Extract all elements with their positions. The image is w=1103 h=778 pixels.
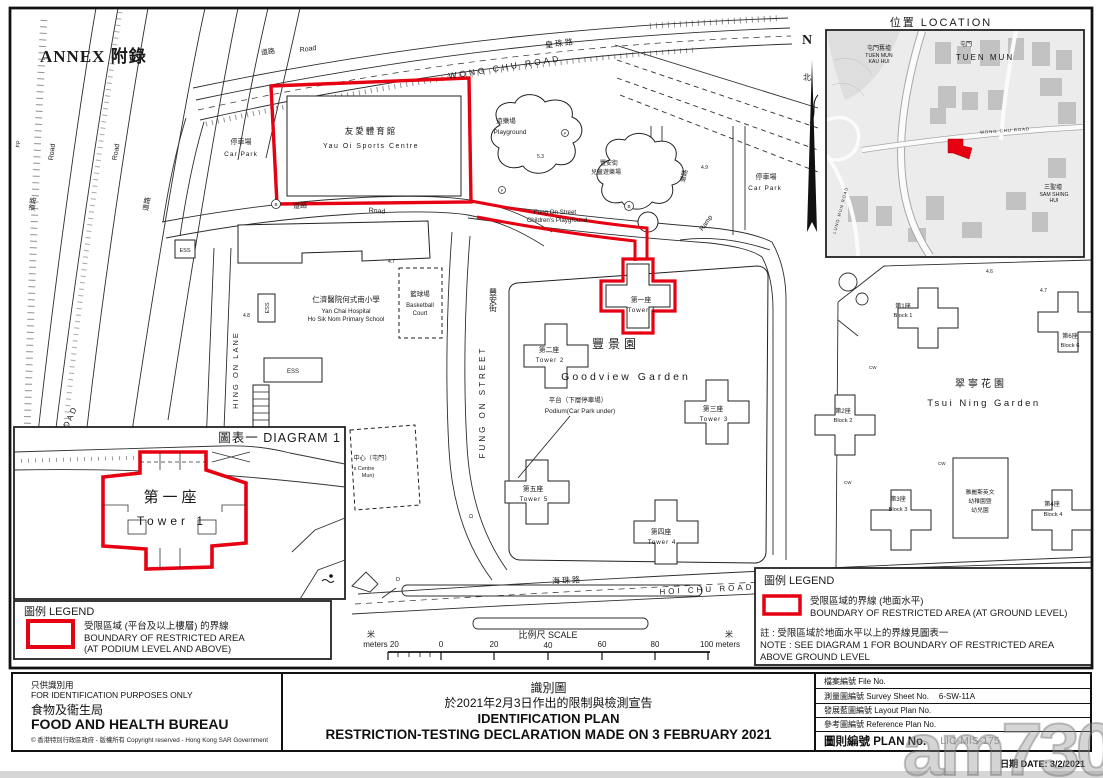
legend-ground: 圖例 LEGEND 受限區域的界線 (地面水平) BOUNDARY OF RES… [755,568,1092,665]
plan-subtitle-en: RESTRICTION-TESTING DECLARATION MADE ON … [325,727,771,743]
label-block-3-zh: 第3座 [890,495,906,503]
label-goodview-en: Goodview Garden [561,371,691,383]
kindergarten-building [953,458,1008,538]
legend-ground-note-en2: ABOVE GROUND LEVEL [760,652,870,663]
label-tsui-ning-zh: 翠寧花園 [955,377,1007,390]
label-goodview-zh: 豐景園 [592,337,640,351]
label-school-en1: Yan Chai Hospital [321,308,370,315]
label-block-2-en: Block 2 [833,418,852,424]
label-block-6-zh: 第6座 [1062,332,1078,340]
legend-podium-title: 圖例 LEGEND [24,604,94,618]
location-inset: 位置 LOCATION [826,15,1084,257]
cw-mark: CW [938,461,946,466]
label-tower-4-en: Tower 4 [648,539,677,546]
bureau-zh: 食物及衞生局 [31,703,275,717]
label-basketball-en2: Court [413,311,428,317]
label-block-3-en: Block 3 [888,507,907,513]
label-block-6-en: Block 6 [1060,343,1079,349]
scale-right-label: 100 meters [700,640,740,649]
label-block-1-en: Block 1 [893,313,912,319]
label-car-park-left-en: Car Park [224,151,258,158]
label-ess-a: ESS [179,248,190,254]
d-mark: D [469,514,475,518]
cw-mark: CW [869,365,877,370]
playground-p-letter: P [564,131,567,136]
inset-label-ssh-zh: 三聖墟 [1044,183,1062,191]
label-sports-centre-en: Yau Oi Sports Centre [323,143,419,150]
label-ess-b: ESS [265,302,271,313]
scale-left-label: meters 20 [363,640,399,649]
label-tower-2-en: Tower 2 [536,357,565,364]
spot-height: 4.6 [986,269,993,275]
label-playground-zh: 遊樂場 [496,116,516,125]
label-tower-5-zh: 第五座 [523,484,544,493]
label-playground-en: Playground [494,129,527,136]
legend-ground-note-en1: NOTE : SEE DIAGRAM 1 FOR BOUNDARY OF RES… [760,640,1055,651]
label-tower-1-zh: 第一座 [631,295,652,304]
label-fung-on-street-en: FUNG ON STREET [478,346,487,459]
label-fung-on-street-zh: 豐安街 [489,287,498,313]
label-tower-3-zh: 第三座 [703,404,724,413]
inset-label-ssh-en2: HUI [1050,198,1059,204]
diagram1-title: 圖表一 DIAGRAM 1 [218,431,341,445]
label-basketball-zh: 籃球場 [410,289,430,298]
label-centre-en2: Mun) [362,473,375,479]
legend-podium-line-en2: (AT PODIUM LEVEL AND ABOVE) [84,644,231,655]
plan-title-en: IDENTIFICATION PLAN [477,711,619,727]
label-kindergarten-2: 幼稚園暨 [968,497,991,505]
label-block-4-en: Block 4 [1043,512,1063,518]
legend-podium-line-zh: 受限區域 (平台及以上樓層) 的界線 [84,620,229,632]
scale-tick-40: 40 [544,641,553,650]
diagram1-tower-en: Tower 1 [137,514,207,528]
scale-tick-0: 0 [439,640,444,649]
label-podium-zh: 平台（下層停車場） [549,395,608,404]
plan-subtitle-zh: 於2021年2月3日作出的限制與檢測宣告 [444,696,652,711]
inset-label-tm-en: TUEN MUN [956,53,1014,62]
diagram1-tower-zh: 第一座 [143,488,200,506]
legend-podium-line-en1: BOUNDARY OF RESTRICTED AREA [84,633,245,644]
legend-ground-line-en: BOUNDARY OF RESTRICTED AREA (AT GROUND L… [810,608,1067,619]
inset-label-tmkh-en2: KAU HUI [868,59,889,65]
title-block-center: 識別圖 於2021年2月3日作出的限制與檢測宣告 IDENTIFICATION … [281,674,816,750]
label-ess-c: ESS [287,369,299,375]
label-fp-mark: FP [16,140,23,148]
label-hoi-chu-zh: 海珠路 [552,574,582,586]
north-zh-label: 北 [803,73,811,82]
scale-unit-zh-left: 米 [367,629,375,639]
scale-title: 比例尺 SCALE [518,629,577,640]
label-car-park-left-zh: 停車場 [231,137,252,146]
survey-circle-letter: B [627,204,630,209]
label-kindergarten-1: 雅麗斯英文 [966,488,995,496]
legend-ground-note-zh: 註 : 受限區域於地面水平以上的界線見圖表一 [760,627,949,639]
label-car-park-right-en: Car Park [748,185,782,192]
plan-map: ANNEX 附錄 皇珠路 WONG CHU ROAD 道路 Road 道路 Ro… [0,0,1103,672]
scale-tick-20: 20 [490,640,499,649]
label-fos-playground-en2: Children's Playground [527,217,588,224]
scale-tick-80: 80 [651,640,660,649]
label-tower-3-en: Tower 3 [700,416,729,423]
spot-height: 4.7 [1040,288,1047,294]
purpose-en: FOR IDENTIFICATION PURPOSES ONLY [31,690,275,700]
label-tower-5-en: Tower 5 [520,496,549,503]
label-block-4-zh: 第4座 [1044,500,1060,508]
file-no-label: 檔案編號 File No. [824,676,886,687]
copyright-line: © 香港特別行政區政府 - 版權所有 Copyright reserved - … [31,735,275,744]
scale-tick-60: 60 [598,640,607,649]
label-hing-on-lane: HING ON LANE [231,331,240,409]
spot-height: 4.9 [701,165,708,171]
label-road-en-mid: Road [368,207,385,215]
bureau-en: FOOD AND HEALTH BUREAU [31,717,275,732]
spot-height: 4.7 [388,259,395,265]
label-sports-centre-zh: 友愛體育館 [345,126,398,136]
title-block-left: 只供識別用 FOR IDENTIFICATION PURPOSES ONLY 食… [13,674,281,750]
label-tsui-ning-en: Tsui Ning Garden [927,398,1040,409]
label-centre-zh: 中心（屯門） [353,454,390,462]
plan-sheet: ANNEX 附錄 皇珠路 WONG CHU ROAD 道路 Road 道路 Ro… [0,0,1103,778]
label-podium-en: Podium(Car Park under) [545,408,615,415]
d-mark: D [396,577,400,583]
label-basketball-en1: Basketball [406,303,434,309]
label-tower-1-en: Tower 1 [628,307,657,314]
diagram1-inset: 圖表一 DIAGRAM 1 第一座 Tower 1 [14,427,345,599]
spot-height: 5.3 [537,154,544,160]
purpose-zh: 只供識別用 [31,680,275,690]
legend-podium: 圖例 LEGEND 受限區域 (平台及以上樓層) 的界線 BOUNDARY OF… [14,601,331,659]
annex-label: ANNEX 附錄 [40,46,147,66]
label-car-park-right-zh: 停車場 [756,172,777,181]
scale-unit-zh-right: 米 [725,629,733,639]
label-tower-4-zh: 第四座 [651,527,672,536]
legend-ground-line-zh: 受限區域的界線 (地面水平) [810,595,923,607]
survey-sheet-value: 6-SW-11A [939,692,975,701]
label-fos-playground-en1: Fung On Street [534,209,577,216]
location-inset-title: 位置 LOCATION [890,15,992,29]
am730-watermark: am730 [903,707,1103,778]
survey-circle-letter: B [274,202,277,207]
spot-height: 4.8 [243,313,250,319]
label-tower-2-zh: 第二座 [539,345,560,354]
label-block-1-zh: 第1座 [895,302,911,310]
cw-mark: CW [844,480,852,485]
label-school-zh: 仁濟醫院何式南小學 [312,294,380,304]
file-no-row: 檔案編號 File No. [816,674,1090,689]
survey-sheet-label: 測量圖編號 Survey Sheet No. [824,691,929,702]
playground-p-letter: P [501,188,504,193]
survey-sheet-row: 測量圖編號 Survey Sheet No. 6-SW-11A [816,689,1090,704]
label-kindergarten-3: 幼兒園 [971,506,989,514]
inset-label-tm-zh: 屯門 [960,40,972,48]
label-school-en2: Ho Sik Nom Primary School [308,316,385,323]
legend-ground-title: 圖例 LEGEND [764,573,834,587]
label-fos-playground-zh2: 兒童遊樂場 [591,168,621,176]
label-centre-en1: s Centre [354,466,375,472]
label-fos-playground-zh1: 豐安街 [600,159,618,167]
inset-label-tmkh-zh: 屯門舊墟 [867,44,891,52]
north-n-label: N [802,33,812,48]
plan-title-zh: 識別圖 [530,681,566,696]
label-block-2-zh: 第2座 [835,407,851,415]
